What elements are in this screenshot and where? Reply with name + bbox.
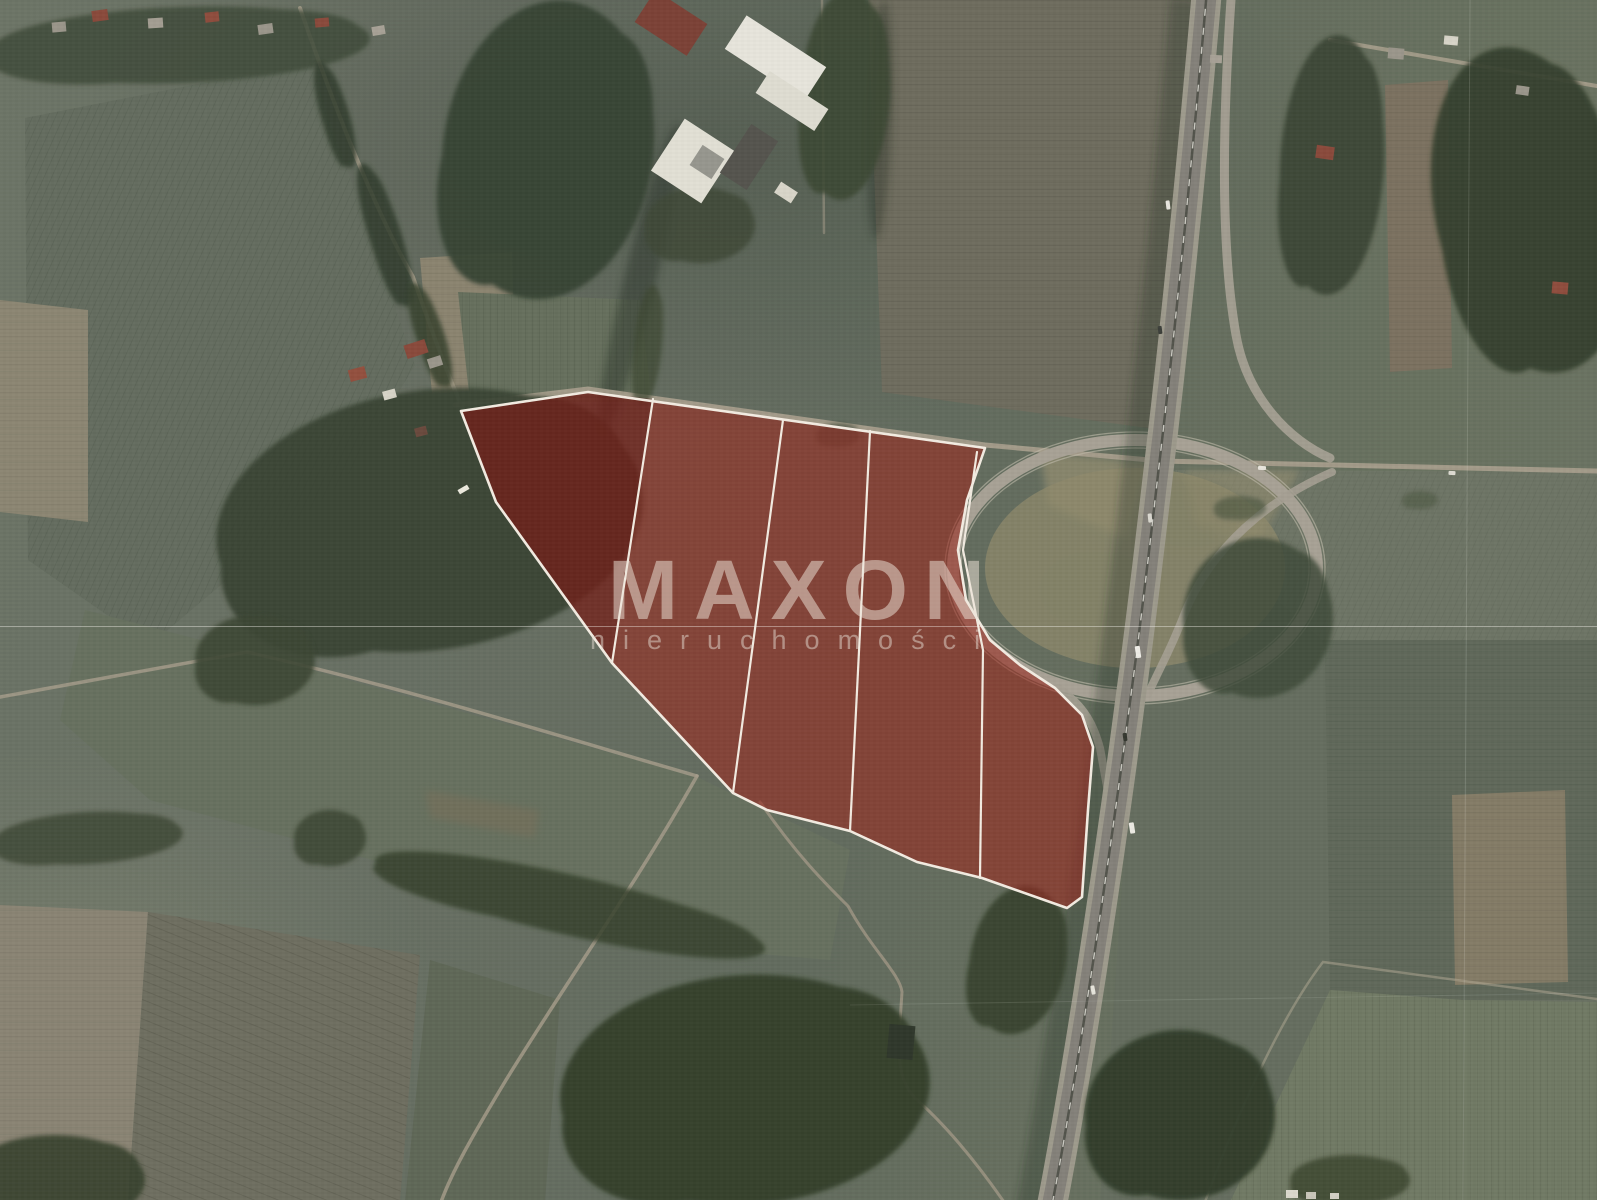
- vehicle: [1448, 471, 1455, 475]
- building-roof: [1210, 55, 1222, 64]
- forest-blob: [252, 622, 312, 681]
- forest-blob: [1254, 550, 1329, 654]
- forest-blob: [1239, 498, 1265, 514]
- forest-patch: [1402, 491, 1438, 509]
- forest-blob: [1419, 492, 1437, 504]
- forest-blob: [1214, 503, 1243, 520]
- forest-blob: [1347, 1159, 1407, 1192]
- map-canvas: [0, 0, 1597, 1200]
- forest-blob: [1085, 1077, 1190, 1196]
- building-roof: [148, 17, 164, 28]
- building-roof: [774, 182, 798, 204]
- forest-patch: [0, 807, 184, 869]
- pale-strip-left-texture: [0, 300, 88, 522]
- building-roof: [1330, 1193, 1339, 1199]
- striped-field-sw-texture: [128, 912, 420, 1200]
- forest-patch: [195, 615, 315, 705]
- building-roof: [257, 23, 273, 35]
- forest-patch: [1214, 496, 1266, 520]
- forest-blob: [645, 208, 706, 261]
- building-roof: [1306, 1192, 1316, 1199]
- building-roof: [1444, 35, 1459, 45]
- tan-field-se-texture: [1452, 790, 1568, 985]
- aerial-photo: MAXON nieruchomości: [0, 0, 1597, 1200]
- building-roof: [315, 17, 330, 27]
- forest-blob: [1402, 496, 1422, 509]
- building-roof: [1515, 85, 1529, 96]
- forest-patch: [1183, 538, 1333, 698]
- forest-blob: [51, 1142, 141, 1200]
- building-roof: [205, 11, 220, 22]
- forest-blob: [1175, 1043, 1270, 1154]
- building-roof: [635, 0, 708, 56]
- forest-patch: [552, 962, 937, 1200]
- building-roof: [52, 21, 67, 32]
- vehicle: [1258, 466, 1266, 470]
- forest-blob: [294, 825, 334, 864]
- building-roof: [1315, 145, 1335, 160]
- forest-blob: [697, 193, 752, 242]
- building-roof: [1286, 1190, 1298, 1198]
- building-roof: [371, 25, 385, 36]
- forest-blob: [328, 814, 364, 850]
- building-roof: [91, 9, 108, 22]
- forest-blob: [1183, 582, 1266, 694]
- building-roof: [887, 1024, 916, 1060]
- forest-patch: [1085, 1030, 1275, 1200]
- forest-patch: [1273, 32, 1390, 297]
- building-roof: [1388, 47, 1405, 59]
- forest-blob: [195, 640, 261, 703]
- building-roof: [1552, 281, 1569, 294]
- forest-patch: [294, 810, 366, 866]
- field-mid-bottom: [405, 960, 560, 1200]
